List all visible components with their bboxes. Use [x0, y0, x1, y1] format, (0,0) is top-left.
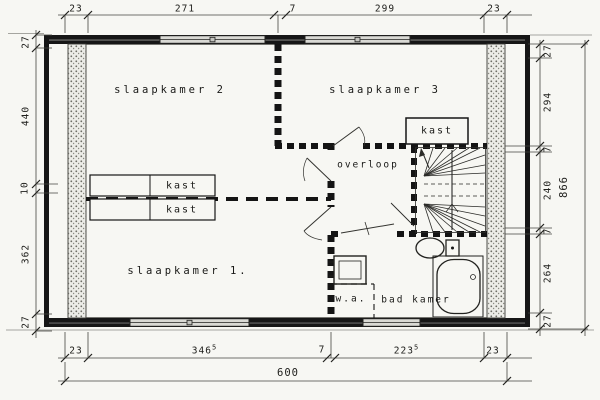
dim-top-4: 299 [375, 4, 395, 15]
dim-top-2: 271 [175, 4, 195, 15]
shower-basin [329, 256, 366, 284]
dim-bottom-4-sup: 5 [414, 343, 418, 351]
dim-left-4: 362 [21, 244, 32, 264]
dim-left-5: 27 [21, 315, 32, 328]
closet-label-lower: kast [166, 205, 198, 216]
dim-bottom-overall: 600 [277, 367, 299, 379]
dim-right-6: 264 [543, 263, 554, 283]
floor-plan: slaapkamer 2 slaapkamer 3 slaapkamer 1. … [0, 0, 600, 400]
dim-bottom-5: 23 [486, 346, 499, 357]
dim-left-2: 440 [21, 106, 32, 126]
dim-right-4: 240 [543, 180, 554, 200]
dim-bottom-4: 2235 [394, 343, 418, 356]
dim-right-2: 294 [543, 92, 554, 112]
toilet [416, 238, 459, 258]
room-label-bedroom1: slaapkamer 1. [127, 265, 248, 277]
closet-label-top-right: kast [421, 126, 453, 137]
dim-bottom-1: 23 [69, 346, 82, 357]
dim-bottom-2: 3465 [192, 343, 216, 356]
bathtub [433, 256, 483, 317]
room-label-landing: overloop [337, 160, 399, 171]
dim-right-5: 7 [543, 228, 554, 235]
room-label-washing-area: w.a. [336, 294, 367, 305]
dim-right-7: 27 [543, 314, 554, 327]
floor-plan-linework [0, 0, 600, 400]
room-label-bedroom2: slaapkamer 2 [114, 84, 226, 96]
dim-left-3: 10 [20, 181, 31, 194]
dim-top-3: 7 [290, 4, 297, 15]
dim-bottom-2-sup: 5 [212, 343, 216, 351]
staircase [391, 148, 486, 233]
closet-label-upper: kast [166, 181, 198, 192]
dim-right-overall: 866 [558, 176, 570, 198]
room-label-bathroom: bad kamer [381, 295, 450, 306]
dim-right-3: 7 [543, 146, 554, 153]
dim-top-1: 23 [69, 4, 82, 15]
dim-right-1: 27 [543, 44, 554, 57]
dim-bottom-3: 7 [319, 345, 326, 356]
room-label-bedroom3: slaapkamer 3 [329, 84, 441, 96]
dim-top-5: 23 [487, 4, 500, 15]
dim-left-1: 27 [21, 35, 32, 48]
